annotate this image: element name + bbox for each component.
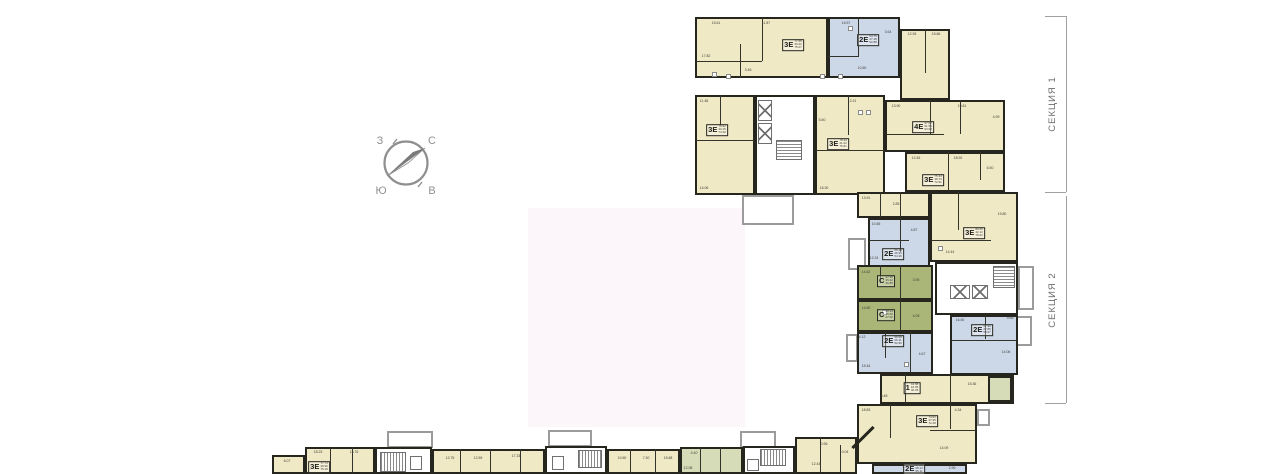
interior-wall [980, 152, 981, 180]
room-area-label: 12.45 [912, 156, 921, 160]
core-closet [747, 459, 759, 471]
stairs-icon [993, 266, 1015, 288]
unit-areas-text: 80.4542.1278.03 [975, 228, 983, 238]
unit-type-text: С [879, 277, 884, 285]
interior-wall [330, 447, 331, 473]
unit-s3-room-a [272, 455, 305, 474]
room-area-label: 2.85 [893, 202, 900, 206]
unit-type-text: 4Е [914, 123, 923, 131]
unit-areas-text: 41.8816.0540.05 [911, 383, 919, 393]
interior-wall [696, 140, 754, 141]
unit-areas-text: 56.4826.9354.36 [894, 249, 902, 259]
unit-s1-3e-c[interactable] [815, 95, 885, 195]
unit-areas-text: 97.0251.5593.08 [924, 122, 932, 132]
room-area-label: 11.48 [700, 99, 709, 103]
interior-wall [900, 218, 901, 252]
interior-wall [900, 265, 901, 299]
unit-s3-rooms-b [432, 449, 545, 474]
room-area-label: 19.80 [998, 212, 1007, 216]
elevator-shaft-icon [972, 285, 988, 299]
fixture-icon [904, 362, 909, 367]
room-area-label: 7.30 [643, 456, 650, 460]
unit-areas-text: 75.4438.7372.91 [934, 175, 942, 185]
room-area-label: 4.12 [859, 335, 866, 339]
room-area-label: 6.07 [284, 459, 291, 463]
unit-type-text: 2Е [973, 326, 982, 334]
section1-label: СЕКЦИЯ 1 [1046, 14, 1060, 194]
room-area-label: 4.34 [955, 408, 962, 412]
unit-type-text: 3Е [708, 126, 717, 134]
room-area-label: 3.46 [745, 68, 752, 72]
compass-letter-south: Ю [375, 185, 386, 197]
unit-type-text: 2Е [859, 36, 868, 44]
interior-wall [950, 374, 951, 403]
room-area-label: 12.43 [812, 462, 821, 466]
room-area-label: 4.87 [911, 228, 918, 232]
room-area-label: 11.87 [762, 21, 771, 25]
room-area-label: 18.23 [314, 450, 323, 454]
room-area-label: 14.06 [1002, 350, 1011, 354]
unit-s1-3e-b[interactable] [695, 95, 755, 195]
room-area-label: 13.90 [892, 104, 901, 108]
fixture-icon [866, 110, 871, 115]
unit-label-s2-2e-b[interactable]: 2Е57.9027.8655.67 [971, 324, 993, 336]
room-area-label: 15.36 [968, 382, 977, 386]
unit-label-s1-3e-d[interactable]: 3Е75.4438.7372.91 [922, 174, 944, 186]
building: 15.6111.8717.823.4616.5710.603.6412.9315… [0, 0, 1280, 474]
unit-type-text: 2Е [884, 250, 893, 258]
stairs-icon [578, 450, 602, 468]
unit-type-text: 1 [906, 384, 910, 392]
fixture-icon [858, 110, 863, 115]
room-area-label: 12.24 [870, 256, 879, 260]
unit-label-s2-2e-d[interactable]: 2Е57.0928.1455.11 [903, 463, 925, 474]
balcony-outline [1018, 266, 1034, 310]
unit-type-text: 3Е [784, 41, 793, 49]
room-area-label: 10.04 [840, 450, 849, 454]
stairs-icon [380, 452, 406, 472]
balcony-outline [977, 409, 990, 426]
balcony-outline [742, 195, 794, 225]
interior-wall [828, 56, 858, 57]
room-area-label: 14.62 [862, 270, 871, 274]
fixture-icon [848, 26, 853, 31]
interior-wall [490, 449, 491, 473]
balcony-outline [387, 431, 433, 448]
room-area-label: 13.91 [862, 196, 871, 200]
room-area-label: 12.21 [848, 99, 857, 103]
interior-wall [460, 449, 461, 473]
room-area-label: 16.57 [842, 21, 851, 25]
room-area-label: 15.44 [862, 364, 871, 368]
interior-wall [880, 192, 881, 217]
room-area-label: 12.08 [684, 466, 693, 470]
unit-areas-text: 76.9240.1574.30 [718, 125, 726, 135]
fixture-icon [938, 246, 943, 251]
room-area-label: 3.95 [913, 278, 920, 282]
interior-wall [700, 447, 701, 473]
interior-wall [900, 300, 901, 331]
balcony-outline [548, 430, 592, 447]
room-area-label: 18.92 [954, 156, 963, 160]
room-area-label: 14.06 [700, 186, 709, 190]
unit-label-s1-3e-b[interactable]: 3Е76.9240.1574.30 [706, 124, 728, 136]
section2-label: СЕКЦИЯ 2 [1046, 210, 1060, 390]
interior-wall [930, 430, 976, 431]
interior-wall [951, 340, 1017, 341]
room-area-label: 12.59 [474, 456, 483, 460]
unit-s1-4e[interactable] [885, 100, 1005, 152]
unit-areas-text: 57.0928.1455.11 [915, 464, 923, 474]
interior-wall [950, 404, 951, 429]
unit-s2-3e-b[interactable] [857, 404, 977, 464]
unit-type-text: 2Е [884, 337, 893, 345]
interior-wall [886, 134, 944, 135]
fixture-icon [712, 72, 717, 77]
room-area-label: 14.09 [940, 446, 949, 450]
interior-wall [948, 152, 949, 191]
balcony-outline [1016, 316, 1032, 346]
floorplan-canvas: 15.6111.8717.823.4616.5710.603.6412.9315… [0, 0, 1280, 474]
room-area-label: 2.96 [949, 466, 956, 470]
room-area-label: 4.40 [691, 451, 698, 455]
room-area-label: 4.05 [913, 314, 920, 318]
compass-letter-west: З [377, 135, 384, 147]
stairs-icon [760, 449, 786, 466]
room-area-label: 4.67 [919, 352, 926, 356]
unit-areas-text: 28.1315.6027.02 [885, 310, 893, 320]
unit-areas-text: 77.7339.9075.18 [320, 462, 328, 472]
interior-wall [890, 404, 891, 438]
room-area-label: 14.80 [862, 306, 871, 310]
elevator-shaft-icon [950, 285, 970, 299]
interior-wall [869, 240, 909, 241]
interior-wall [655, 449, 656, 473]
room-area-label: 4.99 [993, 115, 1000, 119]
unit-label-s1-4e[interactable]: 4Е97.0251.5593.08 [912, 121, 934, 133]
room-area-label: 19.61 [958, 104, 967, 108]
interior-wall [630, 449, 631, 473]
interior-wall [816, 150, 884, 151]
elevator-shaft-icon [758, 100, 772, 121]
fixture-icon [726, 74, 731, 79]
section2-bracket-tick-bottom [1045, 403, 1066, 404]
interior-wall [720, 95, 721, 125]
unit-label-s2-3e-b[interactable]: 3Е74.6337.9572.28 [916, 415, 938, 427]
unit-areas-text: 74.6337.9572.28 [928, 416, 936, 426]
unit-label-s2-2e-a[interactable]: 2Е56.4826.9354.36 [882, 248, 904, 260]
elevator-shaft-icon [758, 123, 772, 144]
unit-areas-text: 55.0826.1152.96 [894, 336, 902, 346]
section1-bracket-line [1066, 16, 1067, 192]
unit-areas-text: 54.7527.4852.88 [869, 35, 877, 45]
unit-type-text: 3Е [918, 417, 927, 425]
section2-bracket-line [1066, 196, 1067, 403]
interior-wall [696, 61, 762, 62]
unit-areas-text: 27.9515.4226.85 [885, 276, 893, 286]
room-area-label: 12.93 [908, 32, 917, 36]
interior-wall [931, 240, 991, 241]
core-closet [410, 456, 422, 470]
unit-label-s1-3e-c[interactable]: 3Е78.3441.0275.81 [827, 138, 849, 150]
unit-type-text: С [879, 311, 884, 319]
unit-type-text: 3Е [310, 463, 319, 471]
room-area-label: 10.60 [618, 456, 627, 460]
interior-wall [720, 447, 721, 473]
room-area-label: 15.68 [664, 456, 673, 460]
room-area-label: 5.60 [819, 118, 826, 122]
interior-wall [520, 449, 521, 473]
room-area-label: 5.48 [881, 394, 888, 398]
interior-wall [900, 192, 901, 217]
unit-label-s2-studio-a[interactable]: С27.9515.4226.85 [877, 275, 895, 287]
unit-label-s2-1k[interactable]: 141.8816.0540.05 [904, 382, 921, 394]
room-area-label: 3.64 [885, 30, 892, 34]
compass-tick-se [418, 182, 422, 187]
room-area-label: 18.83 [862, 408, 871, 412]
unit-label-s1-3e-a[interactable]: 3Е77.6639.2275.07 [782, 39, 804, 51]
fixture-icon [838, 74, 843, 79]
unit-areas-text: 57.9027.8655.67 [983, 325, 991, 335]
room-area-label: 15.61 [712, 21, 721, 25]
interior-wall [925, 29, 926, 73]
unit-label-s2-studio-b[interactable]: С28.1315.6027.02 [877, 309, 895, 321]
room-area-label: 16.30 [820, 186, 829, 190]
core-closet [552, 456, 564, 470]
unit-s3-rooms-c [607, 449, 680, 474]
compass-rose: З С Ю В [370, 128, 450, 206]
unit-label-s1-2e-a[interactable]: 2Е54.7527.4852.88 [857, 34, 879, 46]
unit-type-text: 3Е [965, 229, 974, 237]
room-area-label: 17.33 [512, 454, 521, 458]
unit-label-s3-3e[interactable]: 3Е77.7339.9075.18 [308, 461, 330, 473]
room-area-label: 6.50 [987, 166, 994, 170]
unit-areas-text: 78.3441.0275.81 [839, 139, 847, 149]
compass-letter-east: В [428, 185, 435, 197]
room-area-label: 15.66 [932, 32, 941, 36]
stairs-icon [776, 140, 802, 160]
room-area-label: 17.82 [702, 54, 711, 58]
unit-type-text: 3Е [924, 176, 933, 184]
unit-type-text: 2Е [905, 465, 914, 473]
unit-label-s2-2e-c[interactable]: 2Е55.0826.1152.96 [882, 335, 904, 347]
room-area-label: 16.50 [956, 318, 965, 322]
interior-wall [910, 332, 911, 373]
fixture-icon [820, 74, 825, 79]
room-area-label: 14.44 [946, 250, 955, 254]
compass-letter-north: С [428, 135, 436, 147]
unit-areas-text: 77.6639.2275.07 [794, 40, 802, 50]
room-area-label: 10.60 [858, 66, 867, 70]
interior-wall [958, 192, 959, 230]
room-area-label: 14.76 [350, 450, 359, 454]
room-area-label: 0.96 [821, 442, 828, 446]
unit-type-text: 3Е [829, 140, 838, 148]
room-area-label: 10.65 [872, 222, 881, 226]
room-area-label: 9.68 [1007, 316, 1014, 320]
unit-s2-studio-b[interactable] [857, 300, 933, 332]
unit-s2-green-room [988, 376, 1012, 402]
room-area-label: 12.75 [446, 456, 455, 460]
unit-label-s2-3e-a[interactable]: 3Е80.4542.1278.03 [963, 227, 985, 239]
